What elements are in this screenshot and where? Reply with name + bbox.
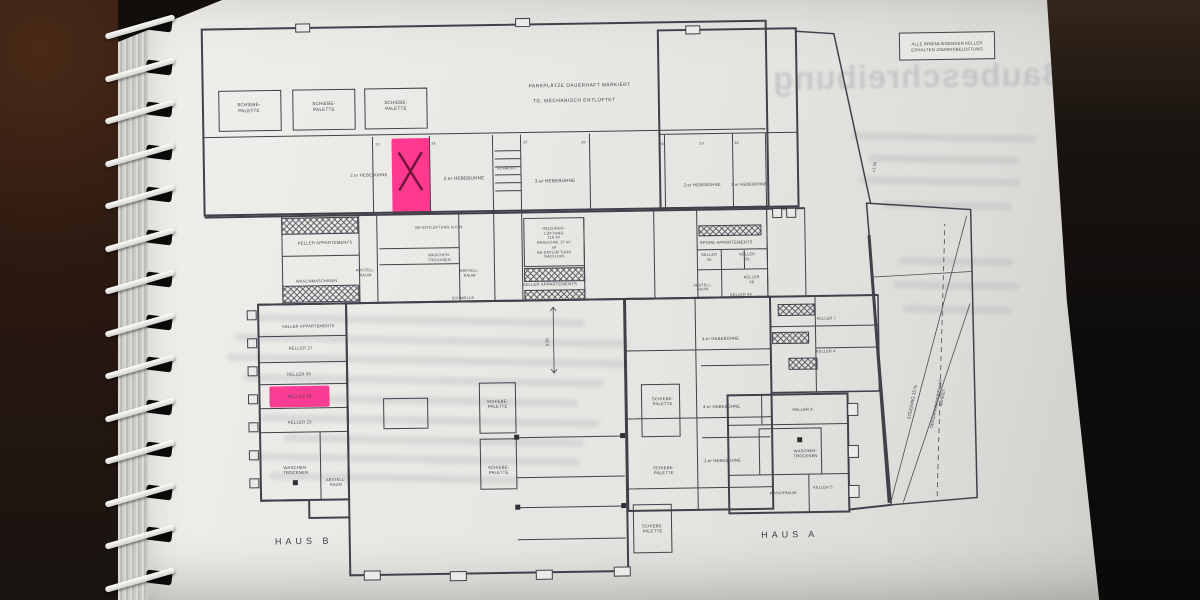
room-label: WASCHMASCHINEN: [296, 278, 338, 284]
room-label: 25: [523, 140, 527, 145]
room-label: 4.er HEBEBÜHNE: [702, 336, 739, 342]
room-label: SCHIEBE- PALETTE: [237, 102, 260, 114]
room-label: KELLER 27: [289, 345, 313, 351]
room-label: 24: [431, 142, 435, 147]
dimension-line: [550, 307, 557, 373]
room-label: WASCHRAUM: [770, 491, 797, 496]
room-label: 30: [734, 141, 738, 146]
room-label: KELLER A: [792, 407, 813, 412]
room-label: 1.er HEBEBÜHNE: [704, 458, 741, 464]
room-label: SCHIEBE- PALETTE: [487, 399, 509, 410]
room-label: 2.er HEBEBÜHNE: [731, 181, 767, 187]
note-line2: ERHALTEN ZWANGSBELÜFTUNG: [911, 46, 983, 52]
room-label: SCHIEBE- PALETTE: [642, 523, 664, 534]
room-label: 2.er HEBEBÜHNE: [350, 172, 387, 178]
room-label: KELLER APPARTEMENTS: [298, 240, 353, 246]
room-label: 2.er HEBEBÜHNE: [684, 182, 721, 188]
dimension-label: 5.50: [545, 337, 550, 346]
room-label: BE-ENTLÜFTUNG N.DIN: [415, 225, 462, 230]
room-label: KELLER 30: [287, 371, 311, 377]
room-label: KELLER APPARTEMENTS: [282, 323, 334, 329]
room-label: ABSTELL- RAUM: [460, 269, 480, 279]
room-label: KELLER 7: [817, 316, 836, 321]
room-label: KELLER 58: [730, 293, 752, 298]
room-label: 26: [581, 140, 585, 145]
room-label: SPORE APPARTEMENTS: [700, 239, 753, 245]
room-label: KELLER 56: [701, 253, 717, 263]
spiral-binding: [0, 0, 210, 600]
interior-walls: [204, 81, 882, 559]
ramp-wall: [869, 235, 889, 503]
haus-b-label: HAUS B: [275, 536, 333, 547]
photo-of-floor-plan-page: Baubeschreibung: [0, 0, 1200, 600]
room-label: ABSTELL- RAUM: [356, 268, 376, 278]
room-label: ABSTELL- RAUM: [693, 283, 712, 292]
haus-a-label: HAUS A: [761, 529, 818, 540]
room-label: WASCHEN- TROCKNEN: [793, 448, 817, 458]
room-label: KELLER 4: [816, 349, 835, 354]
room-label: 2.er HEBEBÜHNE: [444, 175, 485, 181]
highlight-pink-stall: [391, 138, 430, 215]
room-label: 3.er HEBEBÜHNE: [535, 178, 576, 184]
room-label: KELLER 59: [739, 252, 755, 262]
room-label: KELLER 5: [813, 485, 832, 490]
room-label: 28: [659, 142, 663, 147]
room-label: 29: [699, 141, 703, 146]
room-label: WASCHEN- TROCKNEN: [428, 253, 451, 263]
room-label: ABSTELL- RAUM: [326, 478, 346, 488]
room-label: SCHWELLE: [452, 296, 475, 301]
room-label: SCHIEBE- PALETTE: [312, 101, 335, 113]
room-label: 23: [375, 143, 379, 148]
room-label: SCHACHT: [497, 166, 517, 171]
room-label: WASCHEN- TROCKNEN: [283, 465, 308, 476]
room-label: SCHIEBE- PALETTE: [653, 465, 675, 476]
room-label: SCHIEBE- PALETTE: [384, 100, 407, 112]
room-label: HEIZUNGS- LÜFTUNG 118 m² BRAUCHW. 37 m² …: [537, 226, 572, 260]
columns: [292, 430, 803, 513]
room-label: SCHIEBE- PALETTE: [652, 396, 674, 407]
room-label: KELLER 29: [288, 393, 312, 399]
room-label: KELLER 58: [744, 275, 760, 285]
ventilation-note-box: ALLE INNENLIEGENDEN KELLER ERHALTEN ZWAN…: [899, 31, 995, 61]
room-label: KELLER 23: [288, 419, 312, 425]
room-label: 4.er HEBEBÜHNE: [703, 404, 740, 410]
room-label: KELLER APPARTEMENTS: [522, 281, 577, 287]
ramp-slope-label: STEIGUNG 15 %: [906, 385, 918, 420]
room-label: SCHIEBE- PALETTE: [488, 465, 510, 476]
